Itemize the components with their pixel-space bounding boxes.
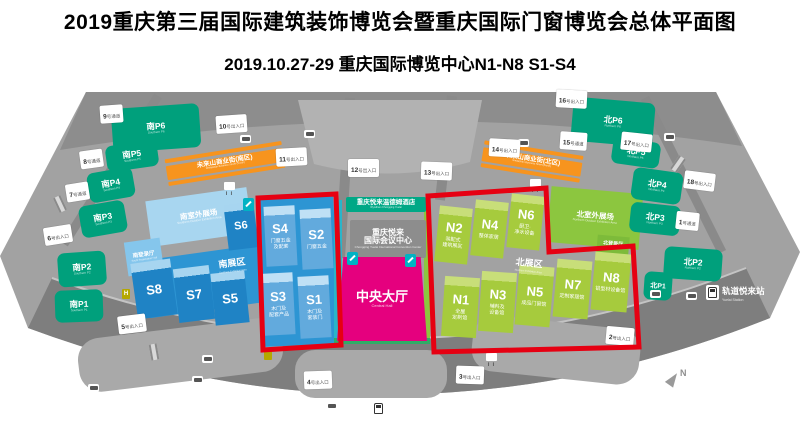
h-sign-icon: H xyxy=(122,289,130,299)
central-hall-label: 中央大厅 xyxy=(337,290,427,304)
gate-suffix: 号出入口 xyxy=(358,168,376,173)
hall-n8-label: N8 xyxy=(603,270,621,284)
gate-13: 13号出入口 xyxy=(421,161,453,180)
hall-n6: N6 厨卫· 净水设备 xyxy=(506,193,544,250)
hall-s6-label: S6 xyxy=(234,220,249,233)
gate-14: 14号出入口 xyxy=(489,138,521,158)
convention-label: 重庆悦来 国际会议中心 xyxy=(350,229,426,246)
gate-3: 3号出入口 xyxy=(456,366,484,385)
bus-stop-icon xyxy=(650,290,661,298)
gate-5: 5号出入口 xyxy=(117,313,147,334)
gate-15: 15号通道 xyxy=(559,131,587,151)
hall-s2-sublabel: 门窗五金 xyxy=(307,243,327,250)
gate-4: 4号出入口 xyxy=(304,371,332,390)
bus-stop-icon xyxy=(88,384,99,392)
bus-stop-icon xyxy=(192,376,203,384)
bus-stop-icon xyxy=(304,130,315,138)
hall-n6-sublabel: 厨卫· 净水设备 xyxy=(514,223,535,237)
hall-s1-label: S1 xyxy=(306,293,323,307)
hall-n1-label: N1 xyxy=(452,292,469,306)
central-hall: 中央大厅 Central Hall xyxy=(337,257,427,341)
gate-suffix: 号通道 xyxy=(87,158,101,165)
gate-suffix: 号出入口 xyxy=(51,233,70,241)
bus-stop-icon xyxy=(326,402,337,410)
parking-label-en: Northern P4 xyxy=(648,188,664,193)
hall-n2-label: N2 xyxy=(445,220,463,235)
hall-s4-sublabel: 门窗五金 及配套 xyxy=(271,237,292,250)
hall-n1: N1 全屋 定制馆 xyxy=(441,276,480,338)
convention-label-en: Chongqing Yuelai International Conventio… xyxy=(350,246,426,249)
gate-suffix: 号出入口 xyxy=(125,323,143,330)
escalator-icon xyxy=(405,254,416,267)
hall-s3: S3 木门及 配套产品 xyxy=(261,272,295,336)
gate-suffix: 号出入口 xyxy=(226,123,244,129)
gate-suffix: 号出入口 xyxy=(566,99,584,105)
parking-south-p2: 南P2Southern P2 xyxy=(57,250,107,287)
gate-suffix: 号出入口 xyxy=(631,141,649,148)
train-icon xyxy=(372,401,385,416)
hall-s8-label: S8 xyxy=(145,281,163,296)
gate-suffix: 号通道 xyxy=(682,220,696,226)
expo-floorplan-poster: 2019重庆第三届国际建筑装饰博览会暨重庆国际门窗博览会总体平面图 2019.1… xyxy=(0,0,800,432)
central-hall-label-en: Central Hall xyxy=(337,304,427,308)
parking-label-en: Southern P5 xyxy=(124,158,141,163)
gate-suffix: 号通道 xyxy=(570,141,584,147)
hall-n2: N2 装配式 建筑展区 xyxy=(434,205,473,264)
metro-expo-label: 轨道国博中心站 xyxy=(388,402,448,412)
parking-south-p1: 南P1Southern P1 xyxy=(54,289,103,323)
compass-arrow-icon xyxy=(665,370,681,387)
compass-label: N xyxy=(680,368,687,378)
hall-n2-sublabel: 装配式 建筑展区 xyxy=(442,236,463,250)
hall-s4-label: S4 xyxy=(272,222,289,236)
parking-label-en: Northern P6 xyxy=(604,125,620,129)
gate-suffix: 号出入口 xyxy=(462,375,480,381)
parking-label-en: Southern P2 xyxy=(74,272,91,276)
hall-n5-label: N5 xyxy=(526,284,544,298)
hotel-strip: 重庆悦来温德姆酒店 Wyndham Chongqing Yuelai xyxy=(346,197,426,212)
parking-label-en: Southern P4 xyxy=(103,187,120,193)
parking-label-en: Northern P5 xyxy=(627,155,643,160)
gate-suffix: 号出入口 xyxy=(612,335,630,342)
gate-suffix: 号通道 xyxy=(107,113,121,119)
parking-north-p3: 北P3Northern P3 xyxy=(629,201,682,236)
gate-suffix: 号出入口 xyxy=(499,148,517,154)
hall-n5-sublabel: 成品门窗馆 xyxy=(521,300,546,308)
compass: N xyxy=(668,372,698,398)
hall-n7: N7 定制家居馆 xyxy=(553,259,593,320)
hall-n3: N3 辅料及 设备馆 xyxy=(478,271,517,333)
hall-s2-label: S2 xyxy=(308,228,325,242)
metro-expo-station: 轨道国博中心站Expo Station xyxy=(372,398,448,418)
south-zone-label-zh: 南展区 xyxy=(218,256,246,269)
hall-s1: S1 木门及 套装门 xyxy=(297,275,331,339)
gate-16: 16号出入口 xyxy=(556,89,588,109)
parking-label-en: Northern P2 xyxy=(684,267,700,271)
gate-2: 2号出入口 xyxy=(605,326,634,346)
bus-stop-icon xyxy=(664,133,675,141)
train-icon xyxy=(706,285,719,300)
gate-suffix: 号出入口 xyxy=(431,171,449,177)
escalator-icon xyxy=(243,198,254,211)
hall-n6-label: N6 xyxy=(517,207,535,222)
hall-s7-label: S7 xyxy=(185,287,202,302)
parking-label-en: Southern P6 xyxy=(148,131,165,135)
hall-n4-label: N4 xyxy=(481,217,499,232)
hall-n4: N4 整体家居 xyxy=(470,199,509,258)
metro-expo-label-en: Expo Station xyxy=(388,415,448,419)
gate-suffix: 号通道 xyxy=(73,191,87,198)
parking-label-en: Northern P3 xyxy=(646,221,662,226)
hall-n3-sublabel: 辅料及 设备馆 xyxy=(489,303,505,316)
hall-s3-sublabel: 木门及 配套产品 xyxy=(269,305,290,318)
hall-n8-sublabel: 铝型材设备馆 xyxy=(595,286,625,295)
gate-9: 9号通道 xyxy=(99,104,123,124)
hall-n7-label: N7 xyxy=(564,277,582,291)
escalator-icon xyxy=(347,252,358,265)
gate-8: 8号通道 xyxy=(79,148,104,169)
gate-suffix: 号出入口 xyxy=(286,156,304,162)
parking-label-en: Southern P3 xyxy=(95,221,112,227)
metro-yuelai-label-en: Yuelai Station xyxy=(722,299,765,303)
hall-s8: S8 xyxy=(130,258,177,319)
toilet-icon xyxy=(224,182,235,190)
hall-s3-label: S3 xyxy=(270,290,287,304)
parking-label: 北P1 xyxy=(650,282,666,290)
hall-n1-sublabel: 全屋 定制馆 xyxy=(452,308,468,321)
hall-s2: S2 门窗五金 xyxy=(299,208,333,270)
hall-s1-sublabel: 木门及 套装门 xyxy=(307,309,323,322)
hall-n3-label: N3 xyxy=(489,287,506,301)
yellow-sign-icon xyxy=(264,350,272,360)
gate-suffix: 号出入口 xyxy=(694,180,712,187)
gate-10: 10号出入口 xyxy=(215,114,247,134)
hall-s5: S5 xyxy=(210,270,249,325)
hall-n8: N8 铝型材设备馆 xyxy=(591,252,632,313)
gate-1: 1号通道 xyxy=(675,211,700,231)
bus-stop-icon xyxy=(686,292,697,300)
gate-17: 17号出入口 xyxy=(620,131,653,152)
hall-n7-sublabel: 定制家居馆 xyxy=(559,293,584,301)
toilet-icon xyxy=(486,353,497,361)
gate-suffix: 号出入口 xyxy=(311,380,329,386)
hall-s5-label: S5 xyxy=(221,291,238,306)
hall-s4: S4 门窗五金 及配套 xyxy=(263,205,297,267)
metro-yuelai-station: 轨道悦来站Yuelai Station xyxy=(706,282,765,302)
gate-7: 7号通道 xyxy=(65,181,91,202)
north-registration-label: 北登录厅 xyxy=(597,241,629,249)
gate-12: 12号出入口 xyxy=(348,159,379,177)
hotel-label-en: Wyndham Chongqing Yuelai xyxy=(346,207,426,210)
parking-label-en: Southern P1 xyxy=(71,309,88,313)
gate-11: 11号出入口 xyxy=(276,147,308,167)
bus-stop-icon xyxy=(202,355,213,363)
metro-yuelai-label: 轨道悦来站 xyxy=(722,286,765,296)
north-zone-label-zh: 北展区 xyxy=(515,257,543,270)
gate-18: 18号出入口 xyxy=(683,170,716,192)
hall-n4-sublabel: 整体家居 xyxy=(478,233,499,241)
bus-stop-icon xyxy=(240,135,251,143)
toilet-icon xyxy=(530,179,541,187)
convention-center: 重庆悦来 国际会议中心 Chongqing Yuelai Internation… xyxy=(350,220,426,258)
